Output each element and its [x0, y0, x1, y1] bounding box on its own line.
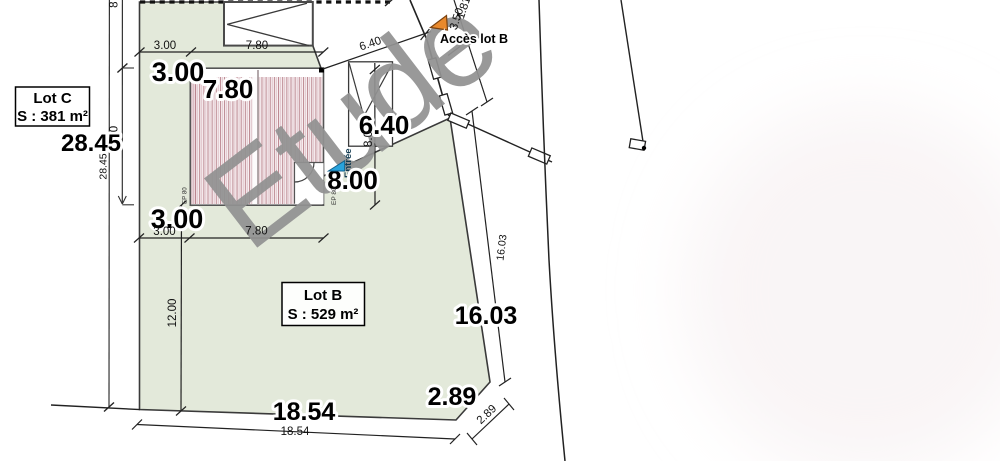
svg-text:S : 381 m²: S : 381 m² — [17, 108, 88, 125]
svg-text:18.54: 18.54 — [273, 398, 336, 426]
svg-text:0: 0 — [109, 126, 121, 132]
svg-text:Lot B: Lot B — [304, 287, 342, 304]
svg-text:Lot C: Lot C — [33, 90, 71, 107]
svg-text:EP 80: EP 80 — [331, 187, 338, 205]
svg-text:18.54: 18.54 — [281, 426, 310, 438]
svg-text:7.80: 7.80 — [203, 74, 254, 104]
svg-text:8.0: 8.0 — [363, 131, 375, 147]
svg-text:3.00: 3.00 — [154, 40, 176, 52]
svg-text:S : 529 m²: S : 529 m² — [288, 306, 359, 323]
svg-text:28.45: 28.45 — [98, 153, 110, 179]
svg-text:12.00: 12.00 — [167, 299, 179, 328]
svg-text:7.80: 7.80 — [246, 40, 268, 52]
svg-text:16.03: 16.03 — [455, 302, 518, 330]
svg-text:7.80: 7.80 — [245, 226, 267, 238]
svg-text:Accès lot B: Accès lot B — [440, 32, 508, 46]
svg-text:8: 8 — [109, 1, 121, 7]
svg-text:3.00: 3.00 — [152, 57, 205, 87]
svg-text:28.45: 28.45 — [61, 130, 121, 157]
svg-text:2.89: 2.89 — [475, 403, 500, 427]
svg-text:16.03: 16.03 — [494, 234, 509, 262]
svg-text:3.00: 3.00 — [153, 226, 175, 238]
svg-text:2.89: 2.89 — [428, 383, 477, 411]
svg-text:EP 80: EP 80 — [182, 187, 189, 204]
